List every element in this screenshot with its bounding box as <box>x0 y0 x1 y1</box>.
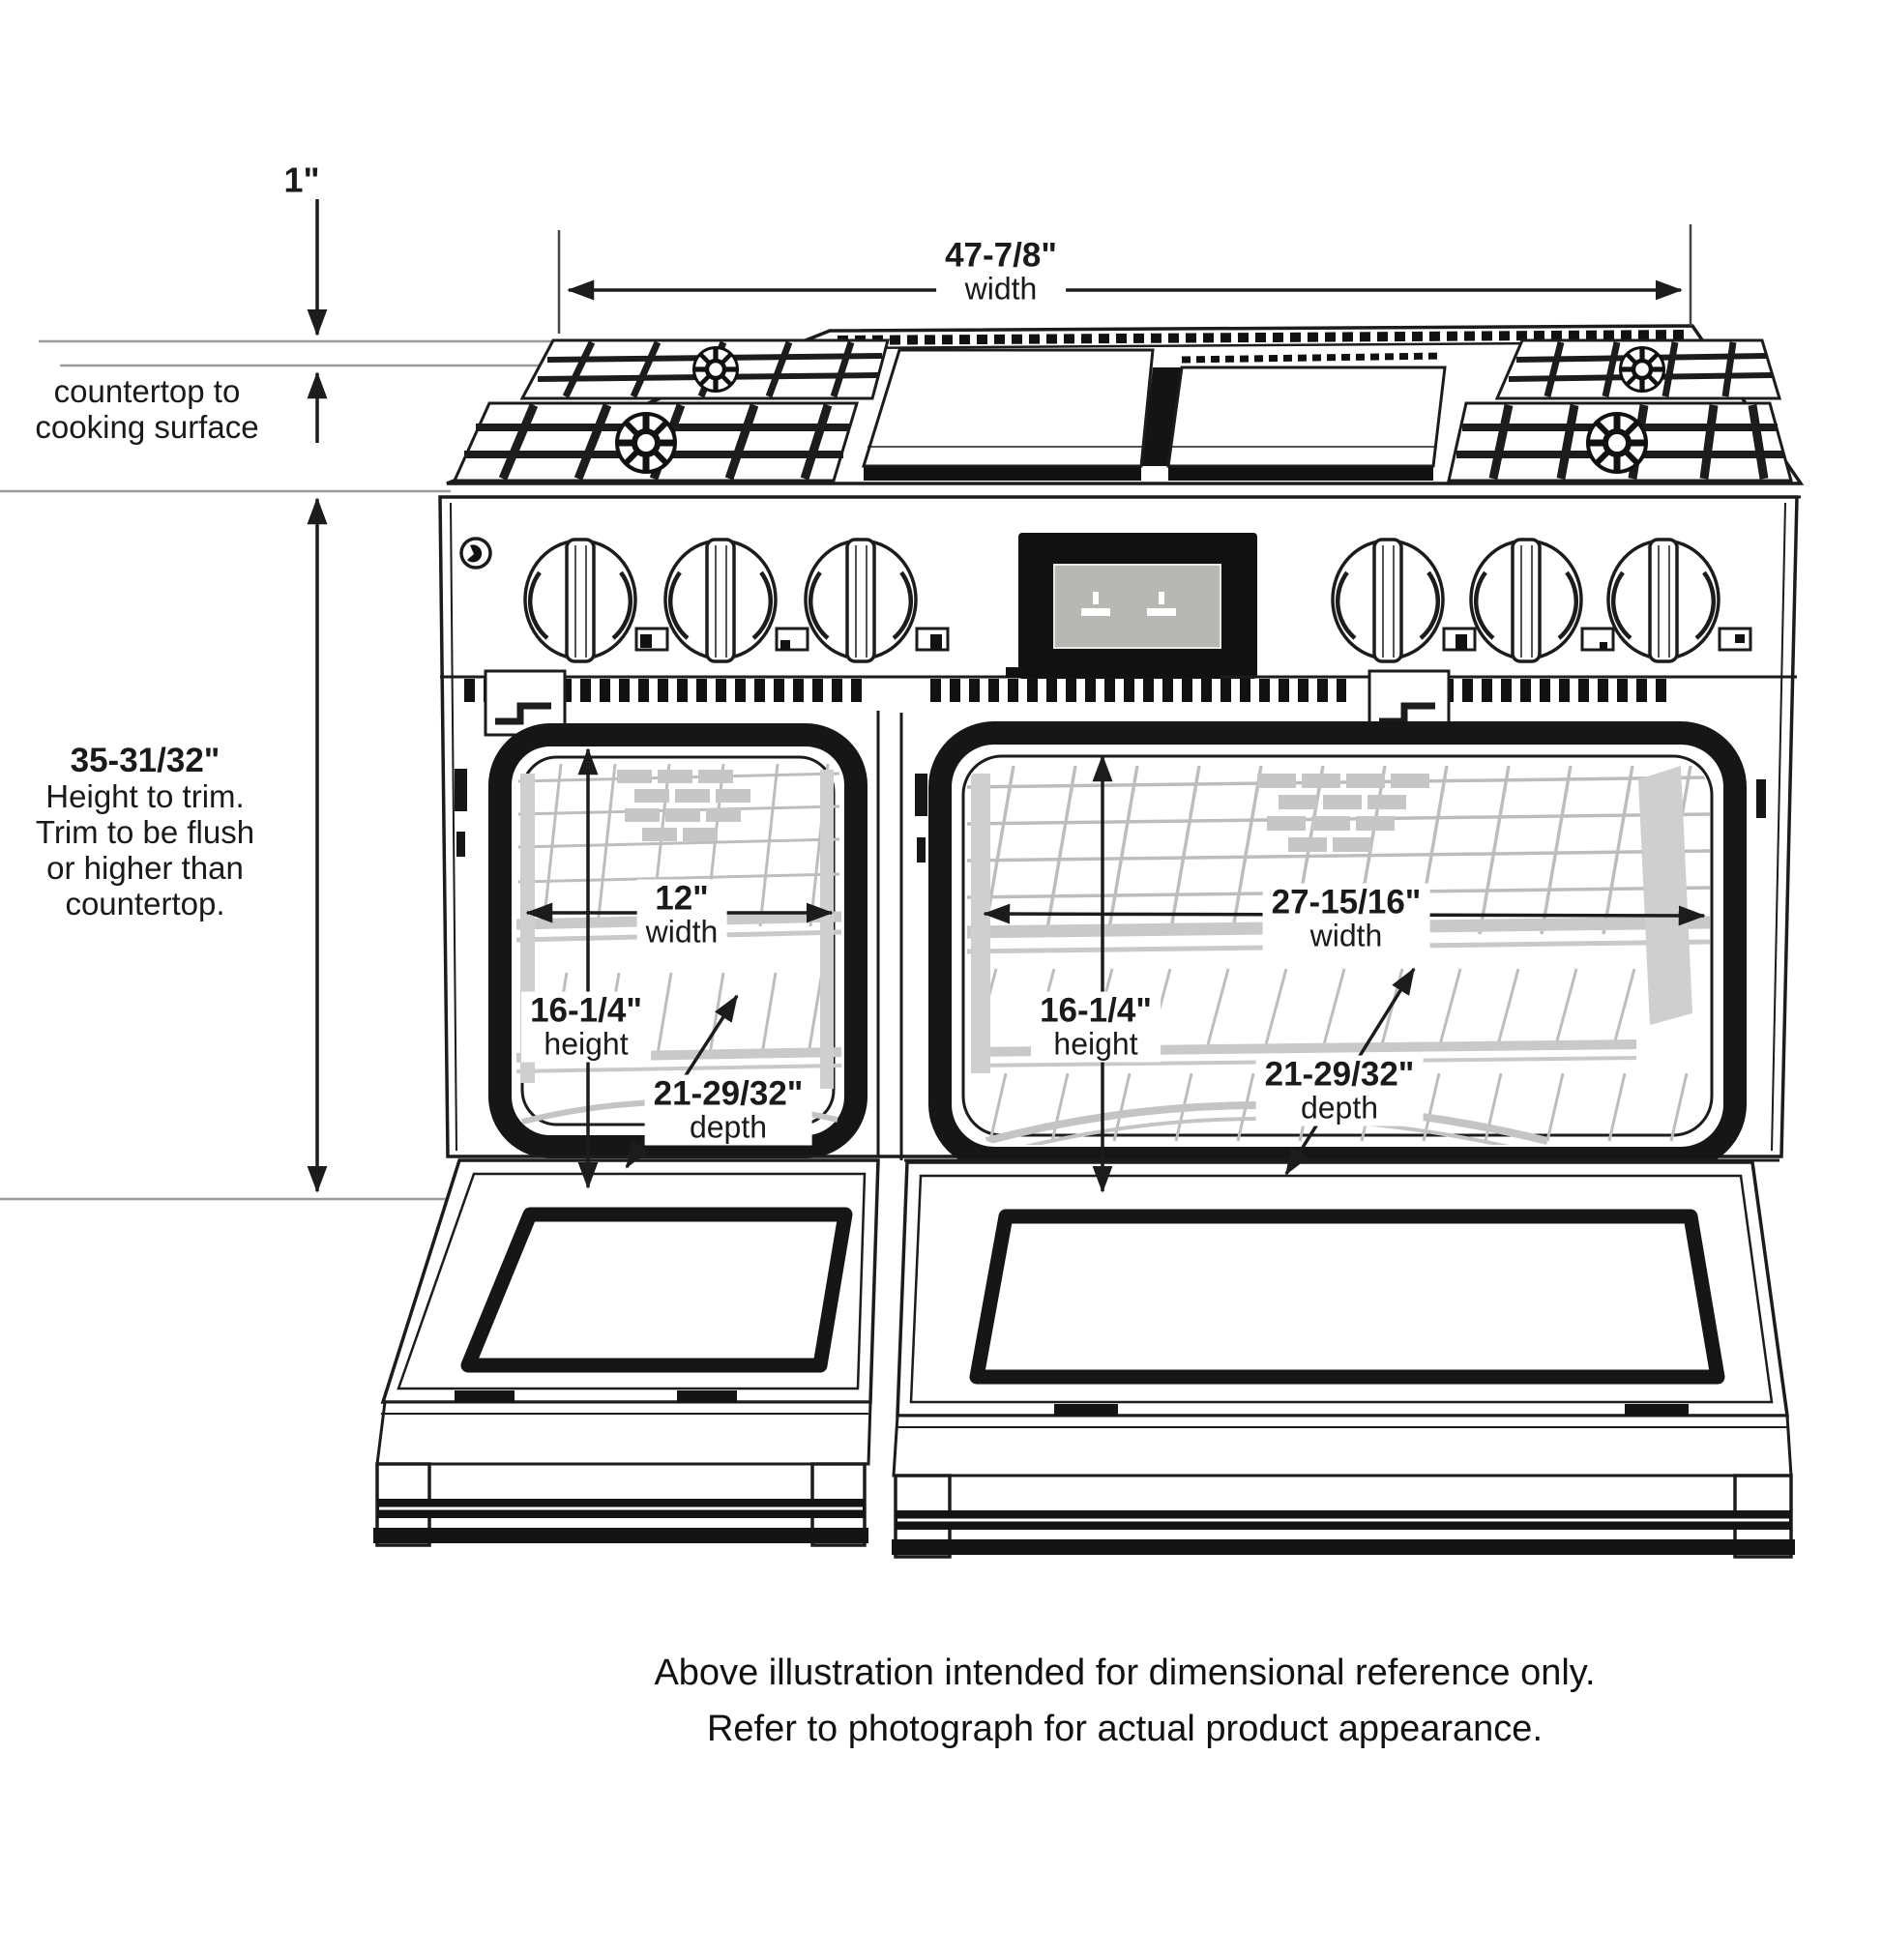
height-note-line3: or higher than <box>36 850 254 886</box>
display-screen <box>1054 565 1220 648</box>
small-oven-door-open <box>373 1160 878 1545</box>
dim-large-oven-width-label: 27-15/16" width <box>1263 884 1430 954</box>
dim-1in-value: 1" <box>283 160 319 199</box>
countertop-note-line1: countertop to <box>35 373 258 409</box>
dim-overall-width-unit: width <box>945 274 1057 306</box>
small-oven-width-unit: width <box>646 917 719 949</box>
burner-grate-left <box>455 340 888 481</box>
height-note-line2: Trim to be flush <box>36 814 254 850</box>
ge-logo-icon <box>461 539 490 568</box>
door-handle <box>892 1476 1795 1557</box>
dim-small-oven-height-label: 16-1/4" height <box>521 992 651 1063</box>
caption-line-1: Above illustration intended for dimensio… <box>654 1652 1595 1694</box>
small-oven-depth-value: 21-29/32" <box>654 1077 804 1112</box>
large-oven-width-value: 27-15/16" <box>1272 886 1422 921</box>
height-note-line4: countertop. <box>36 886 254 921</box>
small-oven-height-unit: height <box>530 1029 642 1061</box>
height-note-line1: Height to trim. <box>36 778 254 814</box>
large-oven-height-value: 16-1/4" <box>1040 994 1152 1029</box>
large-oven-height-unit: height <box>1040 1029 1152 1061</box>
caption-line-2: Refer to photograph for actual product a… <box>707 1708 1543 1750</box>
countertop-note-line2: cooking surface <box>35 409 258 445</box>
dim-overall-width-value: 47-7/8" <box>945 239 1057 274</box>
large-oven-depth-value: 21-29/32" <box>1265 1058 1415 1093</box>
door-window <box>468 1214 845 1365</box>
small-oven-depth-unit: depth <box>654 1112 804 1144</box>
oven-display <box>1018 533 1257 679</box>
height-to-trim-value: 35-31/32" <box>36 743 254 778</box>
dim-large-oven-height-label: 16-1/4" height <box>1031 992 1161 1063</box>
dim-small-oven-depth-label: 21-29/32" depth <box>645 1075 812 1146</box>
large-oven-door-open <box>892 1162 1795 1557</box>
door-window <box>977 1216 1718 1377</box>
dim-overall-width-label: 47-7/8" width <box>936 237 1066 307</box>
countertop-note: countertop to cooking surface <box>35 373 258 445</box>
large-oven-width-unit: width <box>1272 921 1422 952</box>
dim-1in-label: 1" <box>283 161 319 197</box>
door-handle <box>373 1464 868 1545</box>
small-oven-height-value: 16-1/4" <box>530 994 642 1029</box>
griddle-plates <box>864 350 1445 481</box>
small-oven-width-value: 12" <box>646 882 719 917</box>
dim-large-oven-depth-label: 21-29/32" depth <box>1256 1056 1424 1126</box>
large-oven-depth-unit: depth <box>1265 1093 1415 1125</box>
dim-small-oven-width-label: 12" width <box>637 880 727 951</box>
height-to-trim-note: 35-31/32" Height to trim. Trim to be flu… <box>36 743 254 921</box>
dimension-diagram-page: 1" 47-7/8" width countertop to cooking s… <box>0 0 1882 1960</box>
